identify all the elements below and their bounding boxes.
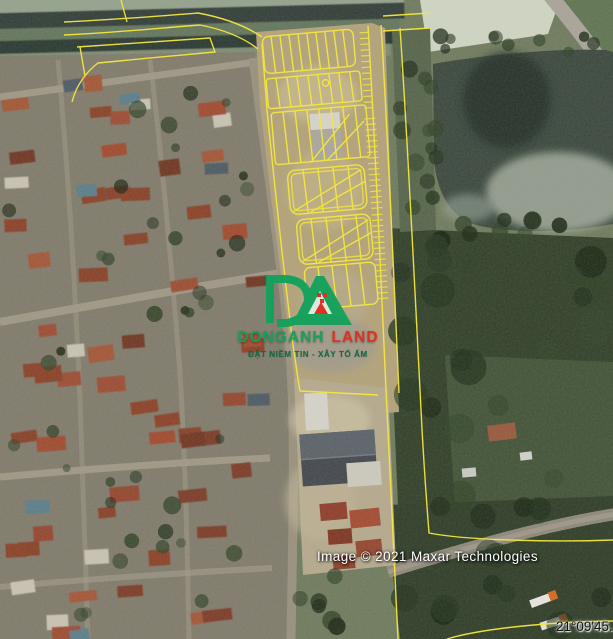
- imagery-attribution: Image © 2021 Maxar Technologies: [317, 549, 538, 564]
- image-grain: [0, 0, 613, 639]
- satellite-imagery: [0, 0, 613, 639]
- coordinates-readout: 21°09'45.: [556, 619, 613, 634]
- satellite-map-viewport[interactable]: DONGANHLAND ĐẶT NIỀM TIN - XÂY TỔ ẤM Ima…: [0, 0, 613, 639]
